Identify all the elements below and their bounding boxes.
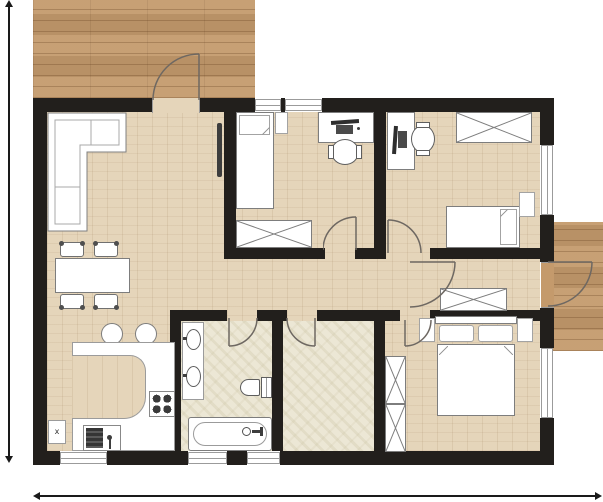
tub-faucet-icon xyxy=(242,427,251,436)
dining-table xyxy=(55,258,130,293)
dining-chair xyxy=(94,242,118,257)
nightstand xyxy=(275,112,288,134)
toilet-tank-line xyxy=(266,378,267,397)
blanket-fold xyxy=(439,346,448,355)
wall-hallway-bathroom xyxy=(257,310,287,321)
dining-chair xyxy=(60,242,84,257)
pillow-fold xyxy=(500,209,508,217)
sink-oval xyxy=(186,329,201,350)
desk-chair xyxy=(331,139,359,165)
faucet-icon xyxy=(183,337,187,340)
wall-living-bedroom1 xyxy=(224,112,236,259)
dimension-line-left xyxy=(2,0,16,464)
wall-left xyxy=(33,98,47,465)
dining-chair xyxy=(60,294,84,309)
window-bedroom1-top xyxy=(255,99,281,111)
laptop-base xyxy=(336,125,353,134)
wall-top xyxy=(322,98,554,112)
single-bed xyxy=(236,112,274,209)
wall-bottom xyxy=(280,451,554,465)
nightstand xyxy=(519,192,535,217)
pillow-fold xyxy=(262,127,270,135)
wardrobe xyxy=(456,112,532,143)
kitchen-box: x xyxy=(48,420,66,444)
floor-plan: x xyxy=(0,0,603,502)
double-bed xyxy=(435,316,517,416)
window-bedroom2-right xyxy=(541,145,553,215)
wardrobe xyxy=(236,220,312,248)
wardrobe-cross xyxy=(237,221,311,247)
desk-chair xyxy=(411,125,435,153)
toilet-bowl xyxy=(240,379,260,396)
blanket xyxy=(437,344,515,416)
sink-oval xyxy=(186,366,201,387)
master-door xyxy=(403,318,433,348)
wardrobe xyxy=(385,356,406,404)
bathroom-door xyxy=(227,316,259,348)
faucet-stem xyxy=(109,439,111,449)
wall-storage-master xyxy=(374,310,385,451)
wall-right xyxy=(540,308,554,348)
corner-sofa xyxy=(47,112,127,232)
wall-bedroom1-bedroom2 xyxy=(374,112,386,259)
blanket-fold xyxy=(504,346,513,355)
terrace-top-left xyxy=(33,0,255,98)
dimension-line-bottom xyxy=(33,489,603,502)
tub-faucet-handle xyxy=(260,427,263,436)
kitchen-counter xyxy=(72,342,175,451)
wall-master-top xyxy=(385,310,400,321)
wardrobe-cross xyxy=(386,405,405,451)
pillow xyxy=(478,325,513,342)
window-kitchen-bottom xyxy=(60,452,107,464)
wall-right xyxy=(540,98,554,145)
sink-basin xyxy=(86,428,103,448)
counter-notch xyxy=(72,355,146,419)
wardrobe-cross xyxy=(386,357,405,403)
wall-bedroom1-bottom xyxy=(236,248,325,259)
wall-bottom xyxy=(107,451,188,465)
hallway-door xyxy=(408,260,456,308)
wall-bedroom2-bottom xyxy=(430,248,540,259)
wall-top xyxy=(200,98,255,112)
wall-top xyxy=(33,98,152,112)
laptop-base xyxy=(398,131,407,148)
kitchen-box-label: x xyxy=(49,421,65,443)
toilet xyxy=(240,377,272,398)
wall-tv xyxy=(217,123,222,177)
single-bed xyxy=(446,206,520,248)
wall-right xyxy=(540,215,554,262)
washbasin-vanity xyxy=(182,322,204,400)
bedroom1-door xyxy=(323,215,361,253)
nightstand xyxy=(517,318,533,342)
wall-bottom xyxy=(227,451,247,465)
wardrobe-cross xyxy=(457,113,531,142)
wall-bottom xyxy=(33,451,60,465)
bathtub xyxy=(188,417,272,451)
entrance-door xyxy=(546,260,594,308)
wall-bathroom-storage xyxy=(272,321,283,451)
window-storage-bottom xyxy=(247,452,280,464)
storage-door xyxy=(285,316,317,348)
faucet-icon xyxy=(183,374,187,377)
bathtub-inner xyxy=(193,422,267,446)
pillow xyxy=(439,325,474,342)
stove-icon xyxy=(149,391,175,417)
bedroom2-door xyxy=(386,217,424,255)
window-bedroom1-top xyxy=(285,99,322,111)
mouse-dot xyxy=(357,127,360,130)
terrace-door xyxy=(150,52,202,100)
terrace-door-opening xyxy=(152,98,200,113)
wardrobe xyxy=(385,404,406,452)
kitchen-sink xyxy=(83,425,121,451)
window-master-right xyxy=(541,348,553,418)
headboard xyxy=(435,316,517,324)
window-bathroom-bottom xyxy=(188,452,227,464)
dining-chair xyxy=(94,294,118,309)
